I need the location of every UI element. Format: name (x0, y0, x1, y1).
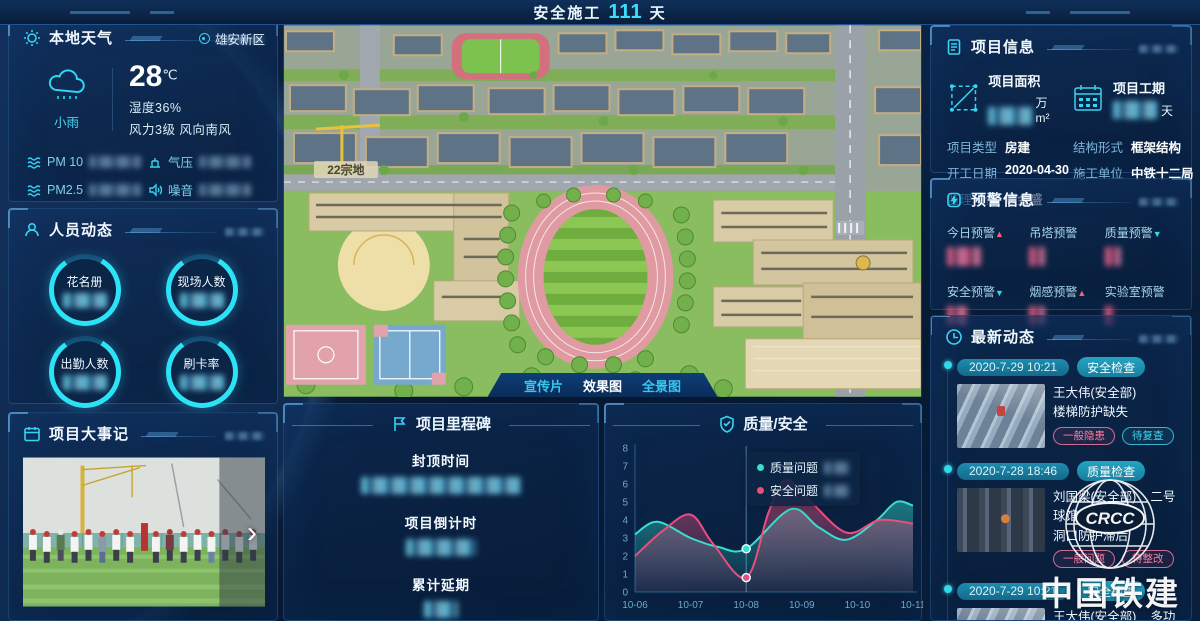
svg-text:0: 0 (622, 588, 628, 599)
weather-panel: 本地天气 雄安新区 小雨 28℃ 湿度36% 风力3级 风向南风 PM 10 气… (8, 16, 278, 202)
sun-icon (23, 29, 41, 47)
wind-text: 风力3级 风向南风 (129, 119, 231, 138)
redacted-value (424, 601, 458, 618)
redacted-value (199, 156, 251, 168)
warning-crane: 吊塔预警 (1029, 224, 1098, 271)
redacted-value (63, 293, 107, 308)
header-line-left (612, 425, 704, 431)
header-line (1047, 202, 1131, 203)
redacted-value (1029, 247, 1045, 266)
feed-title: 最新动态 (971, 326, 1035, 347)
group-photo (23, 456, 265, 608)
location-chip: 雄安新区 (199, 29, 265, 48)
safety-days-count: 111 (608, 1, 642, 24)
event-photo[interactable]: › (23, 456, 265, 608)
milestone-panel: 项目里程碑 封顶时间 项目倒计时 累计延期 (283, 403, 599, 621)
personnel-title: 人员动态 (49, 219, 113, 240)
redacted-value (406, 539, 476, 556)
svg-text:4: 4 (622, 516, 628, 527)
weather-condition: 小雨 (27, 112, 106, 131)
svg-text:22宗地: 22宗地 (327, 162, 364, 177)
timeline-dot (944, 585, 952, 593)
svg-text:5: 5 (622, 498, 628, 509)
gauge-icon (148, 155, 162, 169)
redacted-value (361, 477, 521, 494)
clock-icon (945, 328, 963, 346)
warnings-panel: 预警信息 今日预警▲ 吊塔预警 质量预警▼ 安全预警▼ 烟感预警▲ 实验室预警 (930, 178, 1192, 310)
speaker-icon (148, 183, 162, 197)
field-structure-type: 结构形式框架结构 (1073, 137, 1194, 156)
safety-label: 安全施工 (533, 2, 601, 23)
status-badge: 待复查 (1122, 427, 1174, 445)
header-deco-left (70, 11, 130, 14)
svg-text:10-06: 10-06 (622, 600, 648, 611)
project-info-panel: 项目信息 项目面积 万m² 项目工期 天 (930, 25, 1192, 173)
chart-title: 质量/安全 (743, 413, 807, 434)
redacted-value (824, 462, 850, 474)
svg-text:3: 3 (622, 534, 628, 545)
header-line (1047, 339, 1131, 340)
shield-check-icon (718, 415, 736, 433)
svg-text:6: 6 (622, 480, 628, 491)
redacted-value (63, 375, 107, 390)
view-button-panorama[interactable]: 全景图 (642, 376, 681, 395)
header-line (125, 232, 217, 233)
redacted-value (988, 107, 1031, 125)
stat-ring-roster: 花名册 (49, 254, 121, 326)
header-deco (225, 228, 265, 236)
running-track (518, 185, 674, 369)
header-deco (1139, 335, 1179, 343)
redacted-value (824, 485, 850, 497)
aerial-render: 22宗地 (284, 25, 922, 397)
header-deco (1139, 45, 1179, 53)
warnings-title: 预警信息 (971, 189, 1035, 210)
quality-legend-label: 质量问题 (770, 459, 818, 476)
chart-tooltip: 质量问题 安全问题 (747, 452, 860, 506)
view-button-render[interactable]: 效果图 (583, 376, 622, 395)
temperature-value: 28 (129, 60, 162, 93)
redacted-value (180, 375, 224, 390)
header-deco-right2 (1026, 11, 1050, 14)
svg-text:2: 2 (622, 552, 628, 563)
safety-days-title: 安全施工 111 天 (533, 1, 666, 24)
svg-text:CRCC: CRCC (1085, 509, 1135, 528)
stat-project-duration: 项目工期 天 (1071, 71, 1185, 125)
header-line (1047, 49, 1131, 50)
header-line-right (821, 425, 913, 431)
project-info-title: 项目信息 (971, 36, 1035, 57)
weather-title: 本地天气 (49, 27, 113, 48)
crcc-logo: CRCC 中国铁建 (1026, 472, 1194, 615)
smog-icon (27, 155, 41, 169)
feed-photo (957, 384, 1045, 448)
header-deco (1139, 198, 1179, 206)
safety-unit: 天 (650, 2, 667, 23)
view-button-promo[interactable]: 宣传片 (524, 376, 563, 395)
quality-safety-chart[interactable]: 01234567810-0610-0710-0810-0910-1010-11 … (605, 438, 921, 616)
temperature-unit: ℃ (162, 68, 177, 83)
svg-text:8: 8 (622, 444, 628, 455)
header-line (141, 436, 217, 437)
redacted-value (199, 184, 251, 196)
feed-issue: 楼梯防护缺失 (1053, 403, 1174, 422)
svg-text:1: 1 (622, 570, 628, 581)
svg-text:10-07: 10-07 (678, 600, 704, 611)
location-icon (199, 33, 210, 44)
safety-legend-label: 安全问题 (770, 482, 818, 499)
metric-pm25: PM2.5 (27, 180, 142, 199)
photo-next-arrow[interactable]: › (247, 518, 257, 548)
trend-up-icon: ▲ (1077, 288, 1086, 298)
feed-inspector: 王大伟(安全部) (1053, 386, 1136, 400)
header-line-right (504, 425, 590, 431)
site-3d-view[interactable]: 22宗地 宣传片 效果图 全景图 (283, 25, 922, 397)
redacted-value (1113, 101, 1157, 119)
person-icon (23, 221, 41, 239)
svg-text:10-11: 10-11 (901, 600, 923, 611)
plot-label: 22宗地 (314, 161, 378, 178)
top-header-bar: 安全施工 111 天 (0, 0, 1200, 25)
calendar-grid-icon (1071, 81, 1105, 115)
feed-category: 安全检查 (1077, 357, 1145, 377)
timeline-dot (944, 361, 952, 369)
view-toggle-bar: 宣传片 效果图 全景图 (488, 373, 718, 397)
milestone-topping-time: 封顶时间 (361, 450, 521, 499)
field-project-type: 项目类型房建 (947, 137, 1069, 156)
feed-item[interactable]: 2020-7-29 10:21 安全检查 王大伟(安全部) 楼梯防护缺失 一般隐… (957, 357, 1181, 448)
metric-pm10: PM 10 (27, 152, 142, 171)
milestone-delay: 累计延期 (412, 574, 470, 621)
header-deco-left2 (150, 11, 174, 14)
stat-ring-attendance: 出勤人数 (49, 336, 121, 408)
redacted-value (1105, 247, 1121, 266)
redacted-value (89, 184, 141, 196)
document-icon (945, 38, 963, 56)
quality-legend-dot (757, 464, 764, 471)
metric-noise: 噪音 (148, 180, 263, 199)
crcc-name: 中国铁建 (1026, 567, 1194, 615)
crcc-globe-icon: CRCC (1058, 472, 1162, 576)
warning-quality: 质量预警▼ (1105, 224, 1181, 271)
events-title: 项目大事记 (49, 423, 129, 444)
redacted-value (180, 293, 224, 308)
milestone-photo-panel: 项目大事记 (8, 412, 278, 621)
trend-up-icon: ▲ (995, 229, 1004, 239)
metric-pressure: 气压 (148, 152, 263, 171)
svg-text:10-09: 10-09 (789, 600, 815, 611)
trend-down-icon: ▼ (995, 288, 1004, 298)
milestone-countdown: 项目倒计时 (405, 512, 478, 561)
stat-ring-swipe-rate: 刷卡率 (166, 336, 238, 408)
svg-text:10-10: 10-10 (845, 600, 871, 611)
alert-bolt-icon (945, 191, 963, 209)
area-survey-icon (947, 81, 980, 115)
svg-text:7: 7 (622, 462, 628, 473)
location-label: 雄安新区 (215, 29, 265, 48)
stat-project-area: 项目面积 万m² (947, 71, 1061, 125)
redacted-value (947, 247, 981, 266)
header-deco (225, 432, 265, 440)
redacted-value (89, 156, 141, 168)
stat-ring-onsite: 现场人数 (166, 254, 238, 326)
feed-date: 2020-7-29 10:21 (957, 359, 1069, 376)
trend-down-icon: ▼ (1153, 229, 1162, 239)
warning-today: 今日预警▲ (947, 224, 1023, 271)
timeline-dot (944, 465, 952, 473)
milestone-title: 项目里程碑 (416, 413, 491, 434)
quality-safety-panel: 质量/安全 01234567810-0610-0710-0810-0910-10… (604, 403, 922, 621)
smog-icon (27, 183, 41, 197)
header-deco-right (1070, 11, 1130, 14)
calendar-icon (23, 425, 41, 443)
flag-icon (391, 415, 409, 433)
humidity-text: 湿度36% (129, 97, 231, 116)
rain-cloud-icon (45, 68, 89, 104)
svg-text:10-08: 10-08 (733, 600, 759, 611)
hazard-badge: 一般隐患 (1053, 427, 1115, 445)
header-line-left (291, 425, 377, 431)
safety-legend-dot (757, 487, 764, 494)
personnel-panel: 人员动态 花名册 现场人数 出勤人数 刷卡率 (8, 208, 278, 404)
